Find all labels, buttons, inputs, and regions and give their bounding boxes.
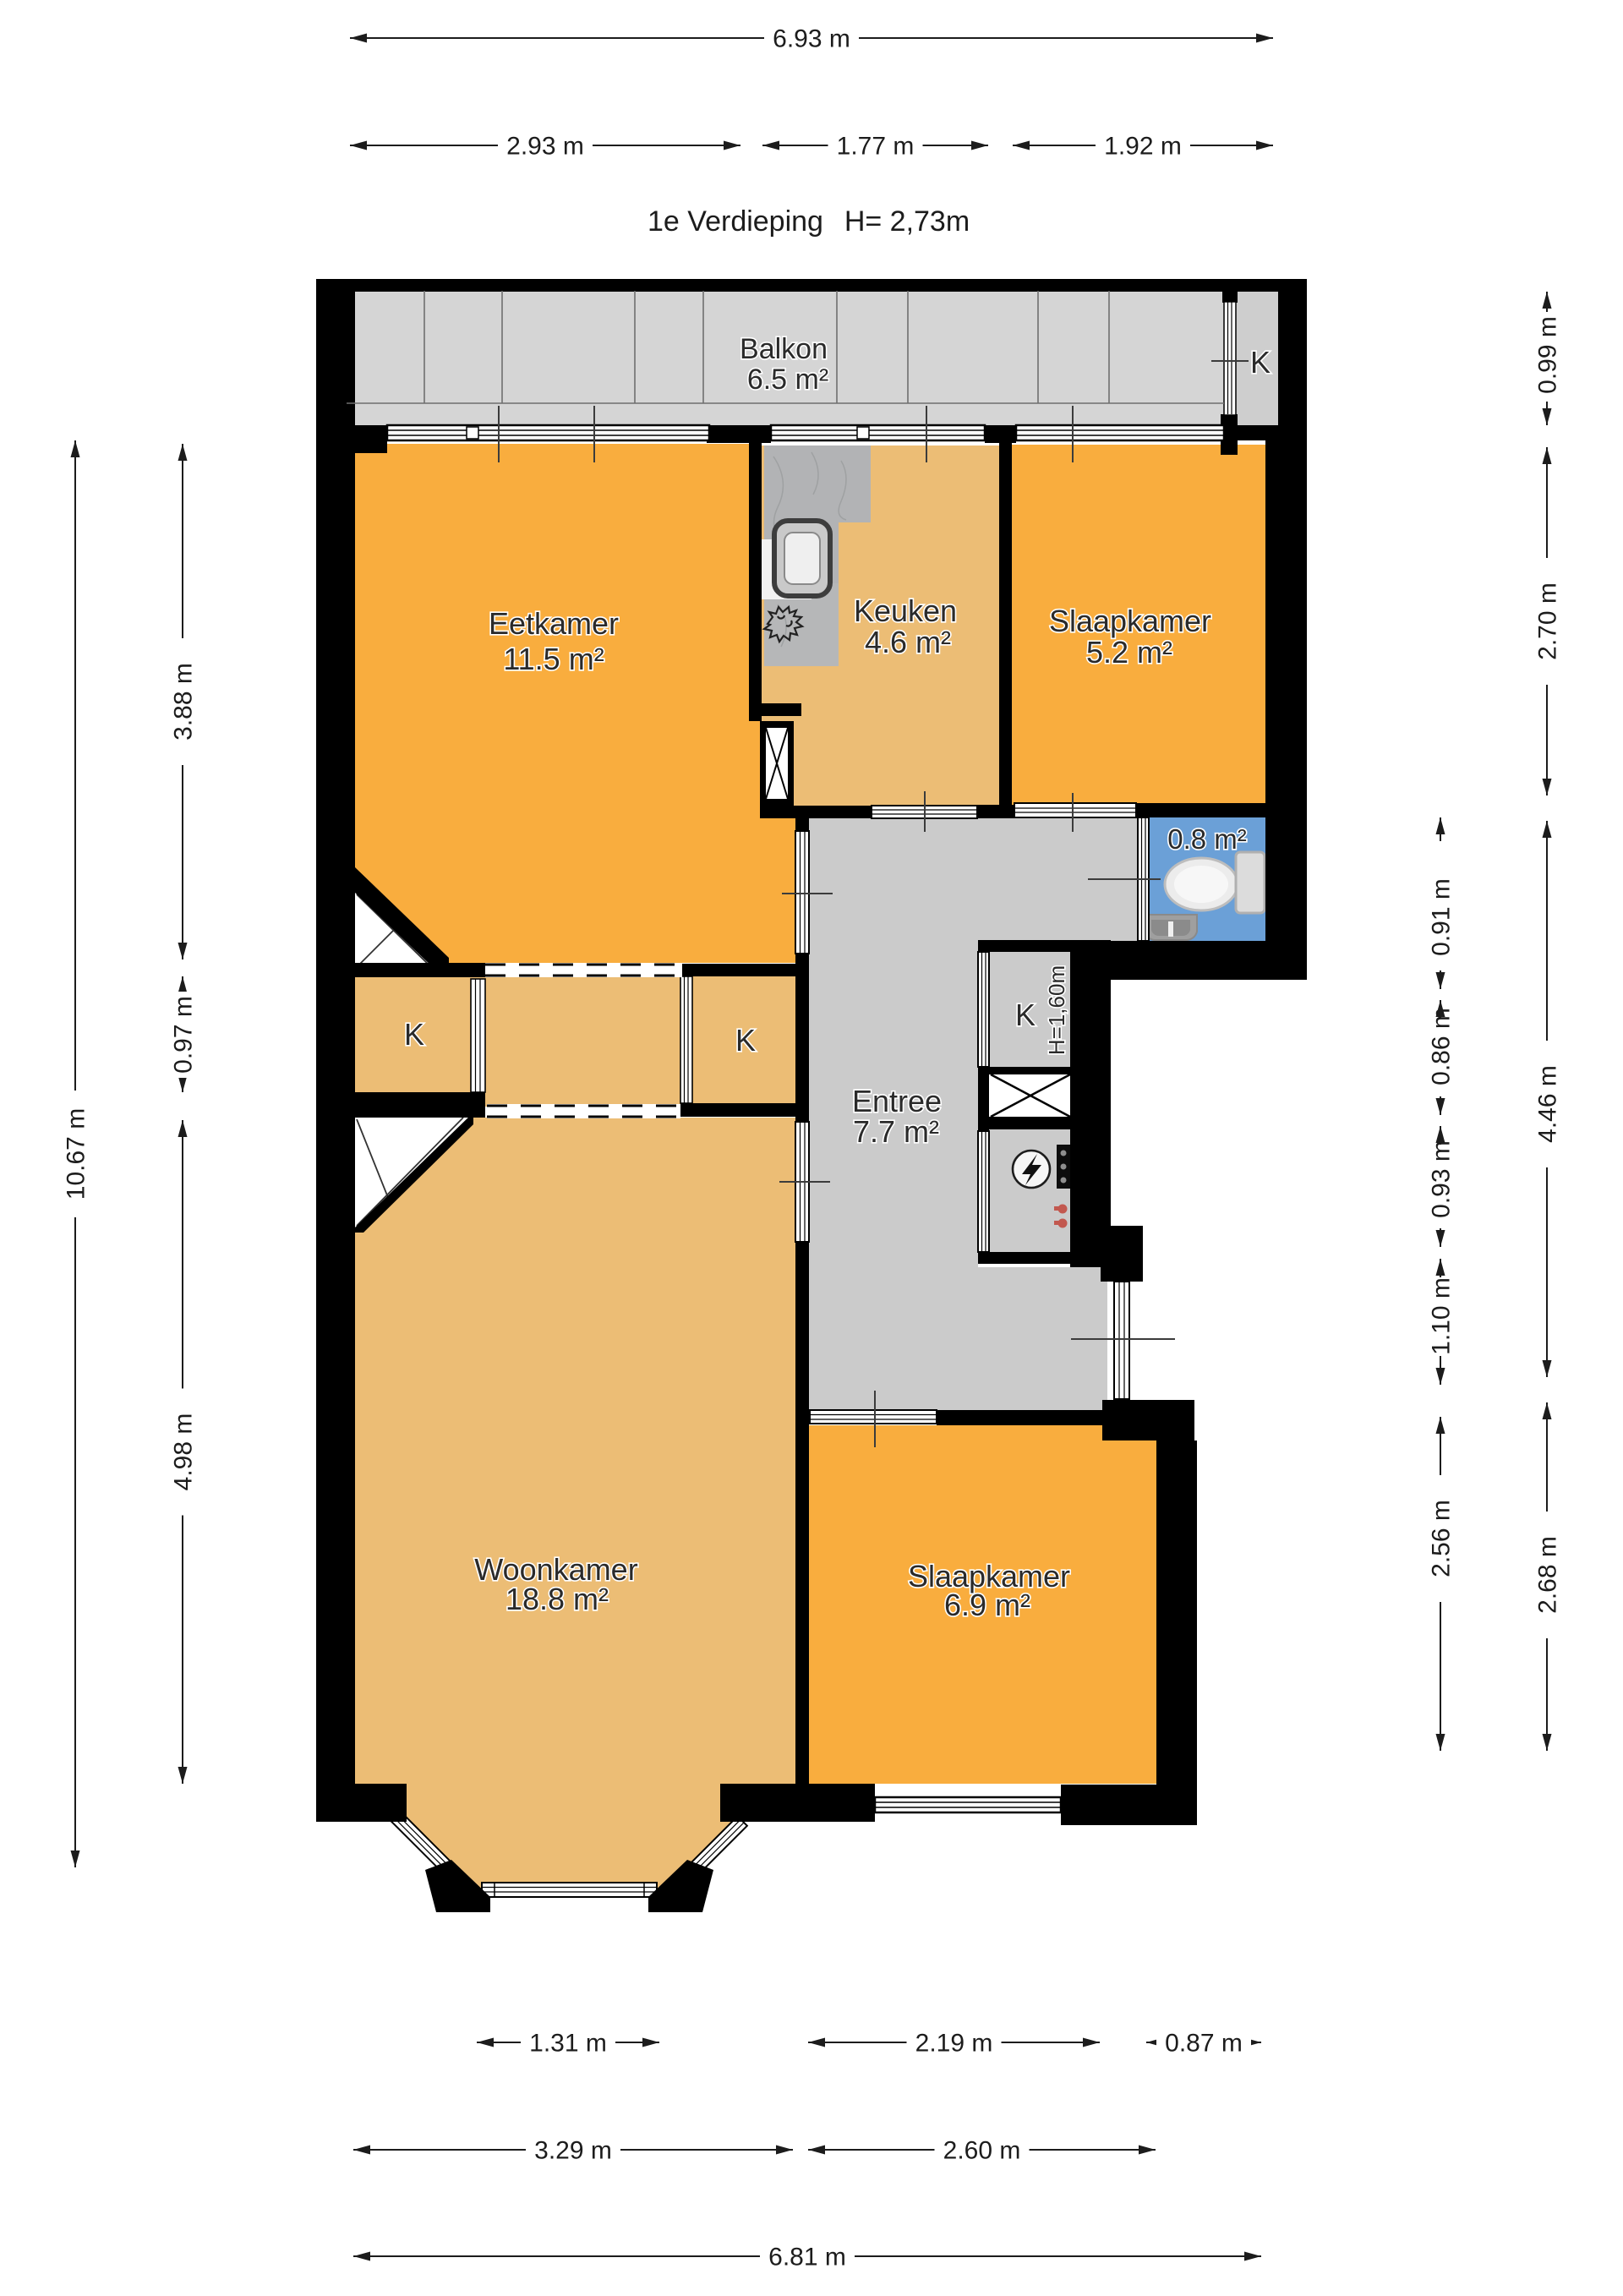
svg-text:0.87 m: 0.87 m	[1165, 2030, 1243, 2058]
svg-text:0.86 m: 0.86 m	[1428, 1008, 1456, 1085]
svg-text:Eetkamer: Eetkamer	[489, 606, 619, 641]
svg-text:2.68 m: 2.68 m	[1534, 1536, 1562, 1614]
svg-text:Entree: Entree	[852, 1084, 942, 1118]
svg-text:2.56 m: 2.56 m	[1428, 1500, 1456, 1577]
svg-text:2.70 m: 2.70 m	[1534, 582, 1562, 660]
svg-text:7.7 m²: 7.7 m²	[853, 1114, 939, 1149]
svg-text:2.19 m: 2.19 m	[915, 2030, 993, 2058]
svg-text:0.91 m: 0.91 m	[1428, 878, 1456, 956]
svg-text:0.93 m: 0.93 m	[1428, 1140, 1456, 1218]
svg-text:Slaapkamer: Slaapkamer	[1049, 604, 1211, 638]
svg-text:2.60 m: 2.60 m	[943, 2137, 1021, 2165]
svg-text:6.9 m²: 6.9 m²	[944, 1588, 1030, 1622]
svg-text:2.93 m: 2.93 m	[506, 133, 584, 161]
svg-text:11.5 m²: 11.5 m²	[503, 642, 604, 676]
svg-text:6.81 m: 6.81 m	[768, 2244, 846, 2271]
svg-text:0.97 m: 0.97 m	[170, 996, 198, 1074]
svg-text:1.10 m: 1.10 m	[1428, 1277, 1456, 1355]
svg-text:K: K	[404, 1017, 424, 1052]
svg-text:1e Verdieping: 1e Verdieping	[648, 205, 823, 238]
svg-text:18.8 m²: 18.8 m²	[505, 1582, 609, 1616]
svg-text:H=1,60m: H=1,60m	[1044, 965, 1069, 1055]
svg-text:3.88 m: 3.88 m	[170, 663, 198, 741]
svg-text:H= 2,73m: H= 2,73m	[844, 205, 970, 238]
svg-text:4.6 m²: 4.6 m²	[865, 625, 951, 659]
svg-text:6.5 m²: 6.5 m²	[747, 364, 828, 396]
svg-text:1.77 m: 1.77 m	[837, 133, 915, 161]
svg-text:4.46 m: 4.46 m	[1534, 1065, 1562, 1143]
svg-text:1.92 m: 1.92 m	[1104, 133, 1182, 161]
svg-text:1.31 m: 1.31 m	[529, 2030, 607, 2058]
svg-text:K: K	[1250, 345, 1271, 380]
svg-text:0.99 m: 0.99 m	[1534, 316, 1562, 394]
svg-text:3.29 m: 3.29 m	[534, 2137, 612, 2165]
svg-text:4.98 m: 4.98 m	[170, 1413, 198, 1491]
svg-text:6.93 m: 6.93 m	[773, 25, 850, 53]
svg-text:K: K	[1015, 998, 1036, 1032]
svg-text:5.2 m²: 5.2 m²	[1086, 635, 1172, 670]
svg-text:Keuken: Keuken	[854, 593, 957, 628]
svg-text:Balkon: Balkon	[740, 333, 828, 365]
svg-text:K: K	[735, 1023, 756, 1058]
svg-text:0.8 m²: 0.8 m²	[1167, 823, 1247, 855]
svg-text:10.67 m: 10.67 m	[63, 1108, 90, 1200]
